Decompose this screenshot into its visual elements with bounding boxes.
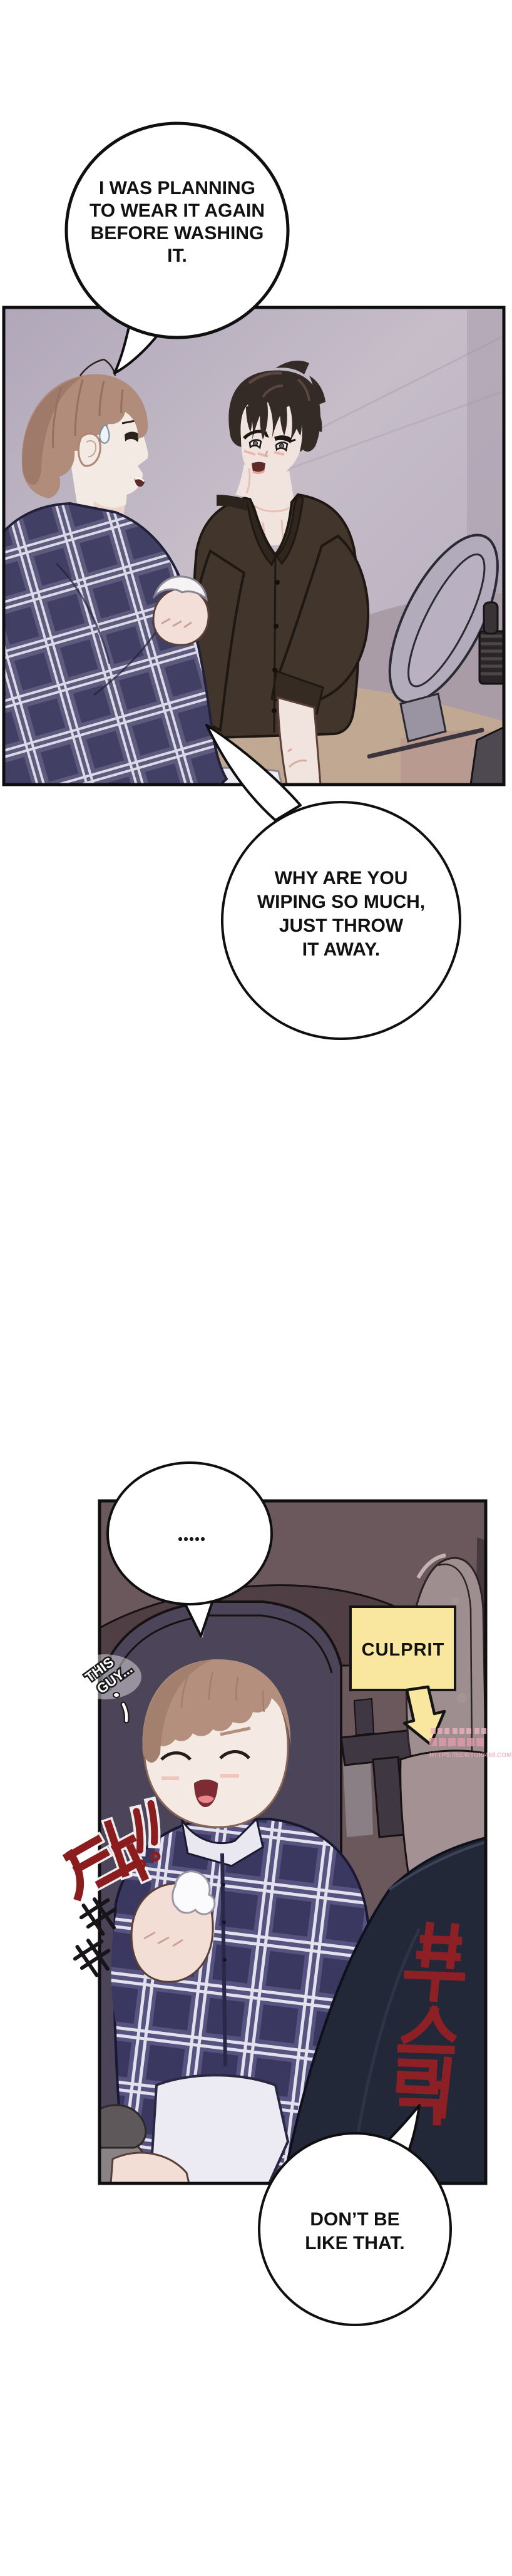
svg-text:BEFORE WASHING: BEFORE WASHING xyxy=(91,223,264,244)
svg-text:I WAS PLANNING: I WAS PLANNING xyxy=(99,178,255,198)
svg-text:IT.: IT. xyxy=(167,245,187,266)
svg-text:WHY ARE YOU: WHY ARE YOU xyxy=(275,868,408,889)
svg-text:HTTPS://NEWTOKI468.COM: HTTPS://NEWTOKI468.COM xyxy=(429,1752,512,1759)
svg-text:IT AWAY.: IT AWAY. xyxy=(302,939,380,960)
svg-text:CULPRIT: CULPRIT xyxy=(362,1640,445,1660)
svg-text:WIPING SO MUCH,: WIPING SO MUCH, xyxy=(257,892,425,912)
svg-text:JUST THROW: JUST THROW xyxy=(279,915,404,936)
svg-text:LIKE THAT.: LIKE THAT. xyxy=(305,2233,404,2254)
svg-text:DON’T BE: DON’T BE xyxy=(310,2209,399,2230)
svg-text:TO WEAR IT AGAIN: TO WEAR IT AGAIN xyxy=(90,200,265,221)
